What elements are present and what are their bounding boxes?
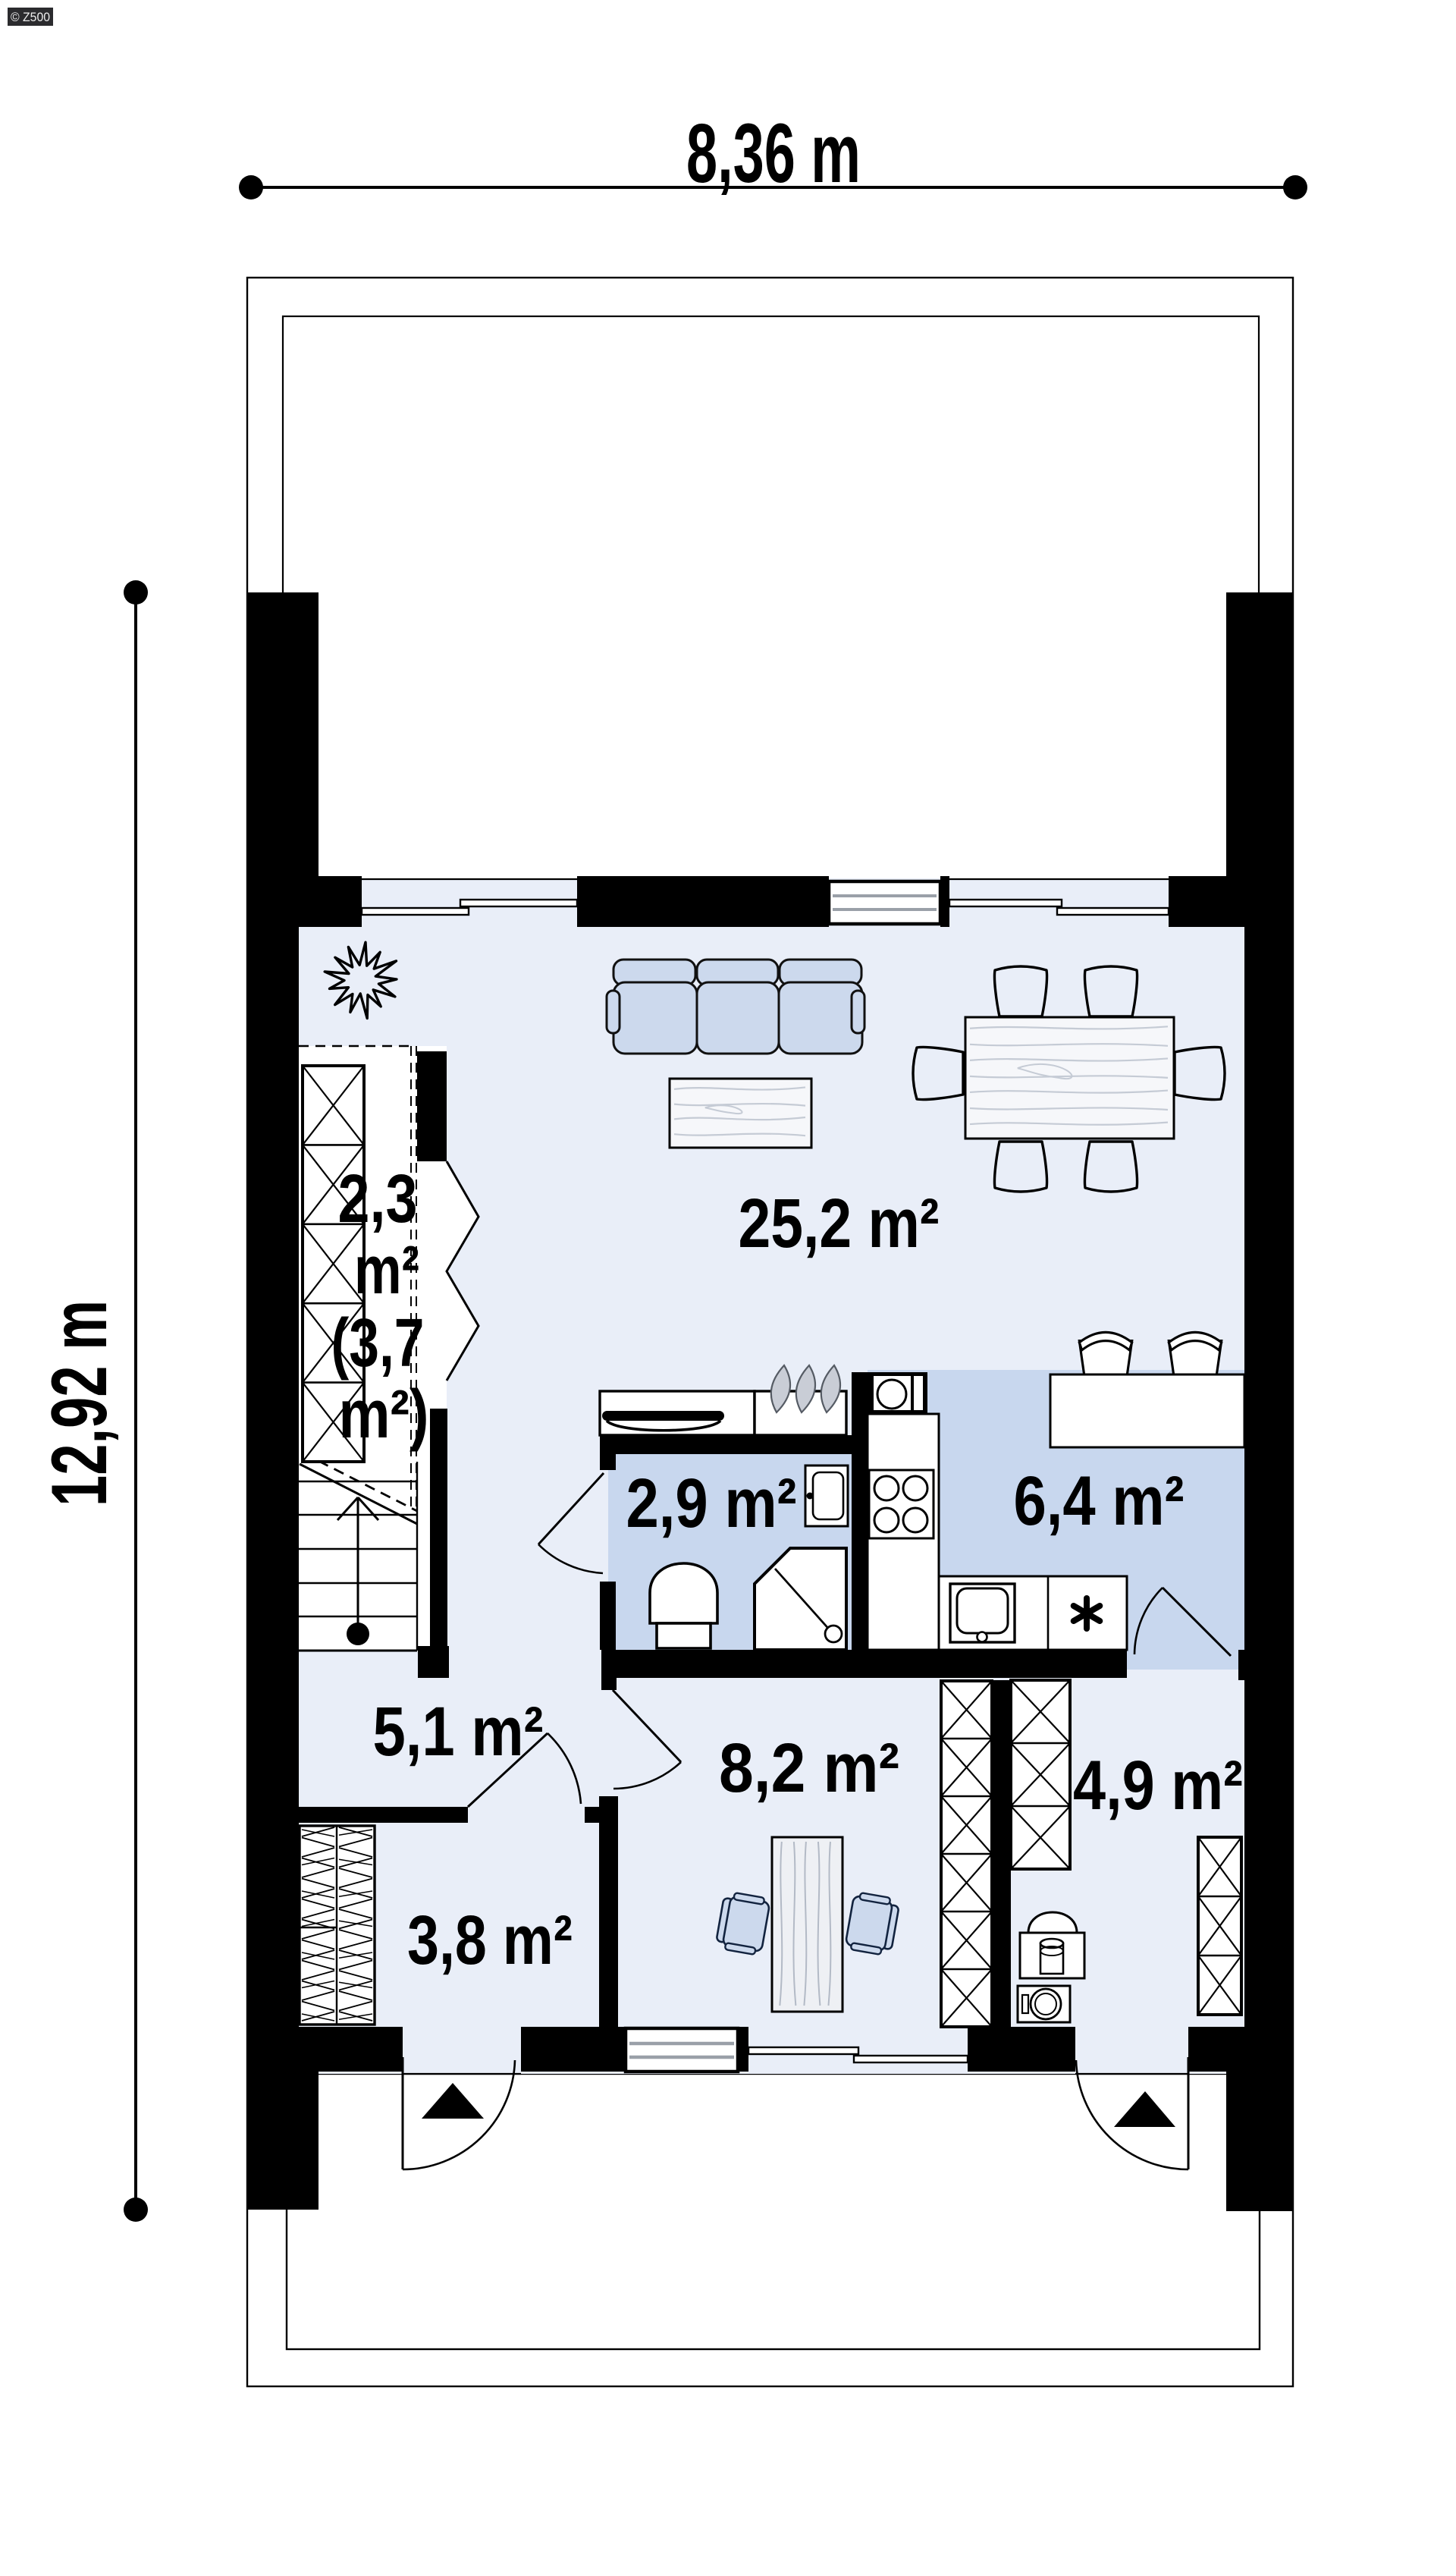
svg-text:(3,7: (3,7	[331, 1305, 425, 1381]
svg-text:5,1 m²: 5,1 m²	[373, 1693, 544, 1770]
svg-text:6,4 m²: 6,4 m²	[1014, 1462, 1185, 1540]
svg-text:© Z500: © Z500	[11, 10, 50, 24]
svg-text:m²: m²	[354, 1233, 419, 1308]
svg-text:2,9 m²: 2,9 m²	[626, 1465, 797, 1542]
svg-text:3,8 m²: 3,8 m²	[407, 1902, 573, 1979]
svg-text:25,2 m²: 25,2 m²	[739, 1185, 940, 1262]
svg-text:2,3: 2,3	[338, 1161, 418, 1237]
svg-text:8,2 m²: 8,2 m²	[719, 1729, 899, 1807]
svg-text:12,92 m: 12,92 m	[36, 1300, 124, 1506]
svg-text:m²): m²)	[339, 1377, 429, 1453]
svg-text:4,9 m²: 4,9 m²	[1073, 1747, 1243, 1824]
svg-text:8,36 m: 8,36 m	[686, 107, 861, 200]
